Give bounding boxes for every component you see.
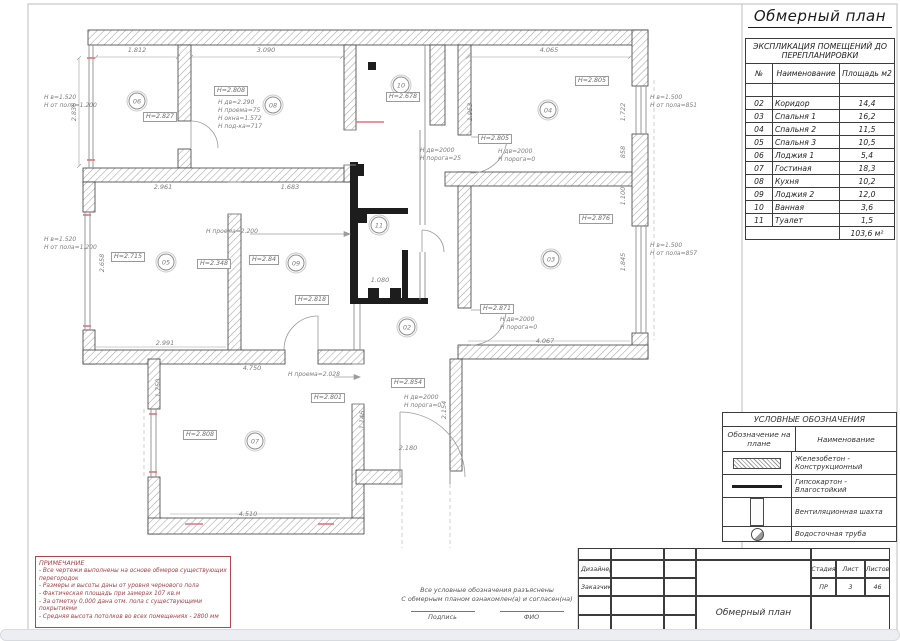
legend-table: УСЛОВНЫЕ ОБОЗНАЧЕНИЯ Обозначение на план… (722, 412, 897, 542)
dimension-label: 4.750 (243, 364, 262, 372)
plan-annotation: H дв=2000 H порога=0 (498, 148, 535, 164)
note-line: - Средняя высота потолков во всех помеще… (39, 614, 227, 622)
room-number-circle: 11 (371, 217, 388, 234)
room-number-circle: 08 (265, 97, 282, 114)
plan-annotation: H дв=2000 H порога=0 (404, 394, 441, 410)
titleblock-sheet-label: Лист (836, 560, 865, 578)
sheet-title: Обмерный план (748, 7, 892, 28)
plan-annotation: H дв=2.290 H проема=75 H окна=1.572 H по… (218, 99, 262, 131)
titleblock-doc-title: Обмерный план (696, 596, 811, 630)
plan-annotation: H проема=2.200 (206, 228, 258, 236)
dimension-label: 4.067 (536, 337, 555, 345)
plan-annotation: H дв=2000 H порога=0 (500, 316, 537, 332)
dimension-label: 1.080 (371, 276, 390, 284)
explication-row: 08Кухня10,2 (746, 175, 895, 188)
dimension-label: 2.180 (399, 444, 418, 452)
height-label: H=2.876 (579, 214, 613, 224)
plan-annotation: H в=1.520 H от пола=1.200 (44, 236, 97, 252)
thick-line-icon (732, 485, 782, 488)
titleblock-sheet-value: 3 (836, 578, 865, 596)
room-number-circle: 10 (393, 77, 410, 94)
room-number-circle: 09 (288, 255, 305, 272)
titleblock-customer-label: Заказчик (578, 578, 611, 596)
note-line: - За отметку 0,000 дана отм. пола с суще… (39, 599, 227, 614)
height-label: H=2.871 (480, 304, 514, 314)
signature-name-label: ФИО (500, 611, 564, 621)
note-box: ПРИМЕЧАНИЕ - Все чертежи выполнены на ос… (35, 556, 231, 628)
plan-annotation: H в=1.500 H от пола=857 (650, 242, 697, 258)
dimension-label: 1.146 (358, 411, 366, 430)
room-number-circle: 07 (247, 433, 264, 450)
note-line: - Размеры и высоты даны от уровня чернов… (39, 583, 227, 591)
walls-concrete (83, 30, 648, 534)
explication-row: 02Коридор14,4 (746, 97, 895, 110)
note-line: - Все чертежи выполнены на основе обмеро… (39, 568, 227, 583)
dimension-label: 4.065 (540, 46, 559, 54)
explication-row: 10Ванная3,6 (746, 201, 895, 214)
explication-col-name: Наименование (773, 64, 840, 84)
note-title: ПРИМЕЧАНИЕ (39, 559, 227, 567)
titleblock-stage-label: Стадия (811, 560, 836, 578)
dimension-label: 858 (619, 146, 627, 158)
room-number-circle: 06 (129, 93, 146, 110)
concrete-hatch-icon (733, 458, 781, 469)
explication-row: 09Лоджия 212,0 (746, 188, 895, 201)
legend-row: Вентиляционная шахта (723, 498, 896, 527)
vent-shaft-icon (750, 498, 764, 526)
titleblock: Дизайнер Стадия Лист Листов Заказчик ПР … (578, 548, 890, 630)
titleblock-sheets-label: Листов (865, 560, 890, 578)
window-bottom-strip (0, 629, 900, 641)
signature-line2: С обмерным планом ознакомлен(а) и соглас… (398, 595, 576, 603)
height-label: H=2.805 (575, 76, 609, 86)
dimension-label: 1.722 (619, 103, 627, 122)
dimension-label: 2.658 (98, 254, 106, 273)
legend-col-symbol: Обозначение на плане (723, 427, 796, 451)
room-number-circle: 04 (540, 102, 557, 119)
dimension-label: 2.961 (154, 183, 173, 191)
height-label: H=2.715 (111, 252, 145, 262)
signature-sign-label: Подпись (411, 611, 475, 621)
dimension-label: 1.100 (619, 187, 627, 206)
drain-pipe-icon (751, 528, 764, 541)
explication-table: ЭКСПЛИКАЦИЯ ПОМЕЩЕНИЙ ДО ПЕРЕПЛАНИРОВКИ … (745, 38, 895, 240)
height-label: H=2.801 (311, 393, 345, 403)
dimension-label: 2.991 (156, 339, 175, 347)
explication-title: ЭКСПЛИКАЦИЯ ПОМЕЩЕНИЙ ДО ПЕРЕПЛАНИРОВКИ (746, 39, 895, 64)
explication-col-area: Площадь м2 (840, 64, 895, 84)
explication-total: 103,6 м² (840, 227, 895, 240)
explication-col-num: № (746, 64, 773, 84)
height-label: H=2.808 (183, 430, 217, 440)
legend-label: Вентиляционная шахта (792, 498, 896, 526)
explication-row: 06Лоджия 15,4 (746, 149, 895, 162)
room-number-circle: 05 (158, 254, 175, 271)
dimension-label: 3.090 (257, 46, 276, 54)
height-label: H=2.678 (386, 92, 420, 102)
height-label: H=2.818 (295, 295, 329, 305)
explication-row: 05Спальня 310,5 (746, 136, 895, 149)
height-label: H=2.808 (214, 86, 248, 96)
drawing-sheet: 06081004050903110207H=2.827H=2.808H=2.67… (0, 0, 900, 641)
titleblock-designer-label: Дизайнер (578, 560, 611, 578)
dimension-label: 1.953 (466, 103, 474, 122)
explication-row: 11Туалет1,5 (746, 214, 895, 227)
height-label: H=2.84 (249, 255, 279, 265)
legend-title: УСЛОВНЫЕ ОБОЗНАЧЕНИЯ (723, 413, 896, 427)
explication-row (746, 84, 895, 97)
titleblock-sheets-value: 46 (865, 578, 890, 596)
signature-line1: Все условные обозначения разъяснены (398, 586, 576, 594)
height-label: H=2.805 (478, 134, 512, 144)
legend-col-name: Наименование (796, 427, 896, 451)
legend-label: Водосточная труба (792, 527, 896, 541)
legend-row: Гипсокартон - Влагостойкий (723, 475, 896, 498)
explication-row: 03Спальня 116,2 (746, 110, 895, 123)
titleblock-stage-value: ПР (811, 578, 836, 596)
plan-annotation: H дв=2000 H порога=25 (420, 147, 461, 163)
plan-annotation: H в=1.520 H от пола=1.200 (44, 94, 97, 110)
legend-label: Гипсокартон - Влагостойкий (792, 475, 896, 497)
plan-annotation: H проема=2.028 (288, 371, 340, 379)
explication-row: 04Спальня 211,5 (746, 123, 895, 136)
room-number-circle: 02 (399, 319, 416, 336)
note-lines: - Все чертежи выполнены на основе обмеро… (39, 568, 227, 621)
legend-body: Железобетон - КонструкционныйГипсокартон… (723, 452, 896, 541)
legend-row: Водосточная труба (723, 527, 896, 541)
dimension-label: 1.683 (281, 183, 300, 191)
dimension-label: 2.154 (440, 401, 448, 420)
plan-annotation: H в=1.500 H от пола=851 (650, 94, 697, 110)
explication-row: 07Гостиная18,3 (746, 162, 895, 175)
legend-label: Железобетон - Конструкционный (792, 452, 896, 474)
note-line: - Фактическая площадь при замерах 107 кв… (39, 591, 227, 599)
height-label: H=2.854 (391, 378, 425, 388)
dimension-label: 1.845 (619, 253, 627, 272)
dimension-label: 1.750 (154, 379, 162, 398)
signature-block: Все условные обозначения разъяснены С об… (398, 585, 576, 621)
height-label: H=2.348 (197, 259, 231, 269)
dimension-label: 4.510 (239, 510, 258, 518)
height-label: H=2.827 (143, 112, 177, 122)
explication-body: 02Коридор14,403Спальня 116,204Спальня 21… (746, 84, 895, 227)
room-number-circle: 03 (543, 251, 560, 268)
legend-row: Железобетон - Конструкционный (723, 452, 896, 475)
dimension-label: 1.812 (128, 46, 147, 54)
